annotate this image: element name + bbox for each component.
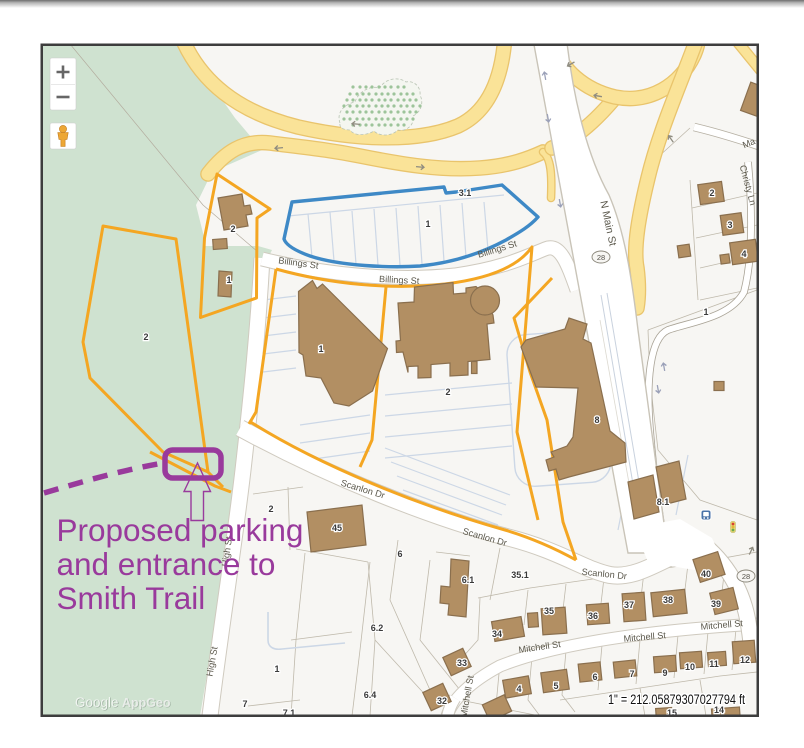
svg-text:2: 2 <box>709 188 714 198</box>
svg-text:9: 9 <box>662 668 667 678</box>
svg-text:7: 7 <box>242 699 247 709</box>
svg-text:40: 40 <box>701 569 711 579</box>
svg-text:1: 1 <box>274 664 279 674</box>
svg-text:2: 2 <box>230 224 235 234</box>
svg-text:Billings St: Billings St <box>379 274 420 286</box>
svg-text:1: 1 <box>425 219 430 229</box>
svg-text:4: 4 <box>516 684 521 694</box>
svg-text:3: 3 <box>727 220 732 230</box>
svg-text:1: 1 <box>226 275 231 285</box>
svg-text:8.1: 8.1 <box>657 497 670 507</box>
svg-text:28: 28 <box>742 572 750 581</box>
svg-text:1: 1 <box>318 344 323 354</box>
svg-text:6.4: 6.4 <box>364 690 377 700</box>
svg-text:Google: Google <box>75 695 119 710</box>
svg-text:Proposed parking: Proposed parking <box>57 512 304 548</box>
svg-text:8: 8 <box>594 415 599 425</box>
svg-text:2: 2 <box>143 332 148 342</box>
svg-text:3.1: 3.1 <box>459 188 472 198</box>
svg-text:6: 6 <box>397 549 402 559</box>
svg-text:6.1: 6.1 <box>462 575 475 585</box>
svg-text:Smith Trail: Smith Trail <box>57 580 206 616</box>
svg-text:2: 2 <box>445 387 450 397</box>
svg-text:33: 33 <box>457 658 467 668</box>
svg-text:38: 38 <box>663 595 673 605</box>
svg-text:12: 12 <box>740 655 750 665</box>
svg-text:39: 39 <box>711 599 721 609</box>
svg-text:10: 10 <box>685 662 695 672</box>
svg-text:5: 5 <box>553 681 558 691</box>
svg-text:and entrance to: and entrance to <box>57 546 276 582</box>
svg-text:6: 6 <box>592 672 597 682</box>
svg-text:28: 28 <box>597 253 605 262</box>
svg-text:34: 34 <box>492 629 502 639</box>
svg-text:11: 11 <box>709 659 719 669</box>
svg-text:1: 1 <box>703 307 708 317</box>
svg-text:45: 45 <box>332 523 342 533</box>
svg-text:35.1: 35.1 <box>511 570 529 580</box>
svg-text:1" = 212.05879307027794 ft: 1" = 212.05879307027794 ft <box>608 692 745 707</box>
svg-text:6.2: 6.2 <box>371 623 384 633</box>
svg-text:7: 7 <box>629 669 634 679</box>
svg-text:37: 37 <box>624 600 634 610</box>
svg-text:35: 35 <box>544 606 554 616</box>
svg-text:4: 4 <box>741 249 746 259</box>
svg-text:32: 32 <box>437 696 447 706</box>
svg-text:36: 36 <box>588 611 598 621</box>
svg-text:AppGeo: AppGeo <box>122 696 171 710</box>
